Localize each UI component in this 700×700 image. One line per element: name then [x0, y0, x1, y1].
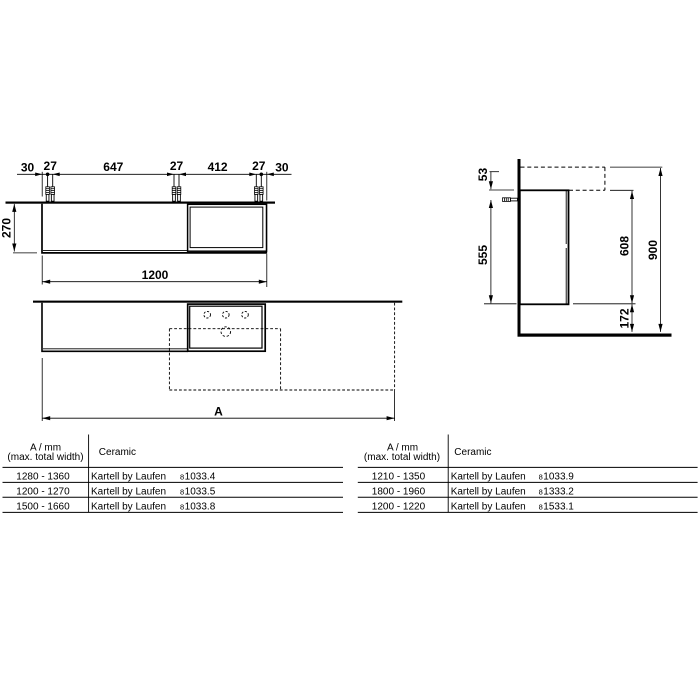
svg-text:Kartell by Laufen: Kartell by Laufen: [91, 501, 166, 512]
svg-text:81333.2: 81333.2: [539, 486, 575, 497]
svg-text:Kartell by Laufen: Kartell by Laufen: [91, 471, 166, 482]
svg-text:A: A: [214, 405, 223, 419]
svg-text:53: 53: [476, 168, 490, 182]
svg-text:900: 900: [646, 240, 660, 260]
svg-text:27: 27: [170, 159, 184, 173]
svg-text:Ceramic: Ceramic: [99, 447, 136, 458]
svg-text:1200: 1200: [142, 268, 169, 282]
svg-text:Kartell by Laufen: Kartell by Laufen: [91, 486, 166, 497]
svg-text:30: 30: [275, 160, 289, 174]
svg-text:647: 647: [103, 160, 123, 174]
svg-text:270: 270: [0, 218, 14, 238]
svg-text:Kartell by Laufen: Kartell by Laufen: [451, 501, 526, 512]
svg-text:81533.1: 81533.1: [539, 501, 575, 512]
svg-text:Kartell by Laufen: Kartell by Laufen: [451, 471, 526, 482]
svg-text:608: 608: [617, 236, 631, 256]
svg-text:(max. total width): (max. total width): [7, 452, 83, 463]
svg-text:27: 27: [252, 159, 266, 173]
svg-text:(max. total width): (max. total width): [364, 452, 440, 463]
svg-text:172: 172: [617, 308, 631, 328]
svg-text:1210 - 1350: 1210 - 1350: [372, 471, 426, 482]
svg-text:1500 - 1660: 1500 - 1660: [16, 501, 70, 512]
svg-text:555: 555: [476, 245, 490, 265]
svg-text:81033.9: 81033.9: [539, 471, 575, 482]
svg-text:1200 - 1270: 1200 - 1270: [16, 486, 70, 497]
svg-text:81033.5: 81033.5: [180, 486, 216, 497]
svg-text:81033.8: 81033.8: [180, 501, 216, 512]
svg-text:30: 30: [21, 160, 35, 174]
svg-text:1200 - 1220: 1200 - 1220: [372, 501, 426, 512]
svg-text:27: 27: [44, 159, 58, 173]
svg-text:1800 - 1960: 1800 - 1960: [372, 486, 426, 497]
svg-text:Kartell by Laufen: Kartell by Laufen: [451, 486, 526, 497]
svg-text:81033.4: 81033.4: [180, 471, 216, 482]
svg-text:412: 412: [208, 160, 228, 174]
svg-text:1280 - 1360: 1280 - 1360: [16, 471, 70, 482]
svg-text:Ceramic: Ceramic: [454, 447, 491, 458]
